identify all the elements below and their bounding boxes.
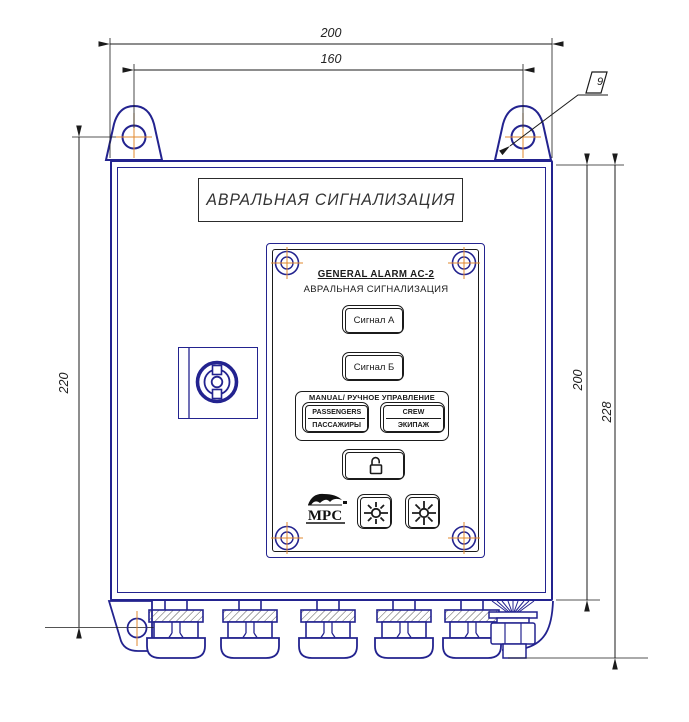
- lamp-button-1: [357, 494, 392, 529]
- mounting-hole-icon: [128, 619, 147, 638]
- signal-a-label: Сигнал А: [354, 315, 395, 326]
- padlock-open-icon: [364, 455, 386, 477]
- detail-flag-number: 9: [594, 76, 606, 88]
- dim-body-height: 200: [571, 360, 585, 400]
- lamp-button-2: [405, 494, 440, 529]
- passengers-label-ru: ПАССАЖИРЫ: [312, 420, 361, 430]
- wave-logo-icon: МРС: [302, 490, 350, 532]
- title-plate-text: АВРАЛЬНАЯ СИГНАЛИЗАЦИЯ: [206, 190, 455, 210]
- drawing-canvas: АВРАЛЬНАЯ СИГНАЛИЗАЦИЯ GENERAL ALARM AC-…: [0, 0, 689, 722]
- passengers-button: PASSENGERS ПАССАЖИРЫ: [302, 402, 369, 433]
- lamp-dim-icon: [363, 500, 389, 526]
- manufacturer-logo: МРС: [302, 490, 350, 532]
- logo-text: МРС: [308, 508, 342, 524]
- dim-hole-spacing-left: 220: [57, 363, 71, 403]
- panel-title-en: GENERAL ALARM AC-2: [283, 269, 469, 280]
- title-plate: АВРАЛЬНАЯ СИГНАЛИЗАЦИЯ: [198, 178, 463, 222]
- divider: [386, 418, 440, 419]
- mounting-hole-icon: [123, 126, 146, 149]
- manual-group-label: MANUAL/ РУЧНОЕ УПРАВЛЕНИЕ: [306, 393, 438, 402]
- ground-terminal-icon: [489, 601, 537, 658]
- signal-b-label: Сигнал Б: [354, 362, 395, 373]
- crew-label-en: CREW: [403, 407, 425, 417]
- dim-width-overall: 200: [311, 26, 351, 40]
- lock-button: [342, 449, 405, 480]
- key-switch-plate: [178, 347, 258, 419]
- crew-label-ru: ЭКИПАЖ: [398, 420, 429, 430]
- signal-a-button: Сигнал А: [342, 305, 404, 334]
- lamp-bright-icon: [411, 500, 437, 526]
- mounting-bracket-right: [495, 106, 551, 160]
- crew-button: CREW ЭКИПАЖ: [380, 402, 445, 433]
- bottom-foot-right: [502, 601, 553, 650]
- passengers-label-en: PASSENGERS: [312, 407, 361, 417]
- bottom-foot-left: [45, 601, 162, 651]
- panel-title-ru: АВРАЛЬНАЯ СИГНАЛИЗАЦИЯ: [278, 284, 474, 295]
- dim-hole-spacing-top: 160: [311, 52, 351, 66]
- divider: [308, 418, 364, 419]
- signal-b-button: Сигнал Б: [342, 352, 404, 381]
- mounting-bracket-left: [106, 106, 162, 160]
- dim-overall-height: 228: [600, 392, 614, 432]
- mounting-hole-icon: [512, 126, 535, 149]
